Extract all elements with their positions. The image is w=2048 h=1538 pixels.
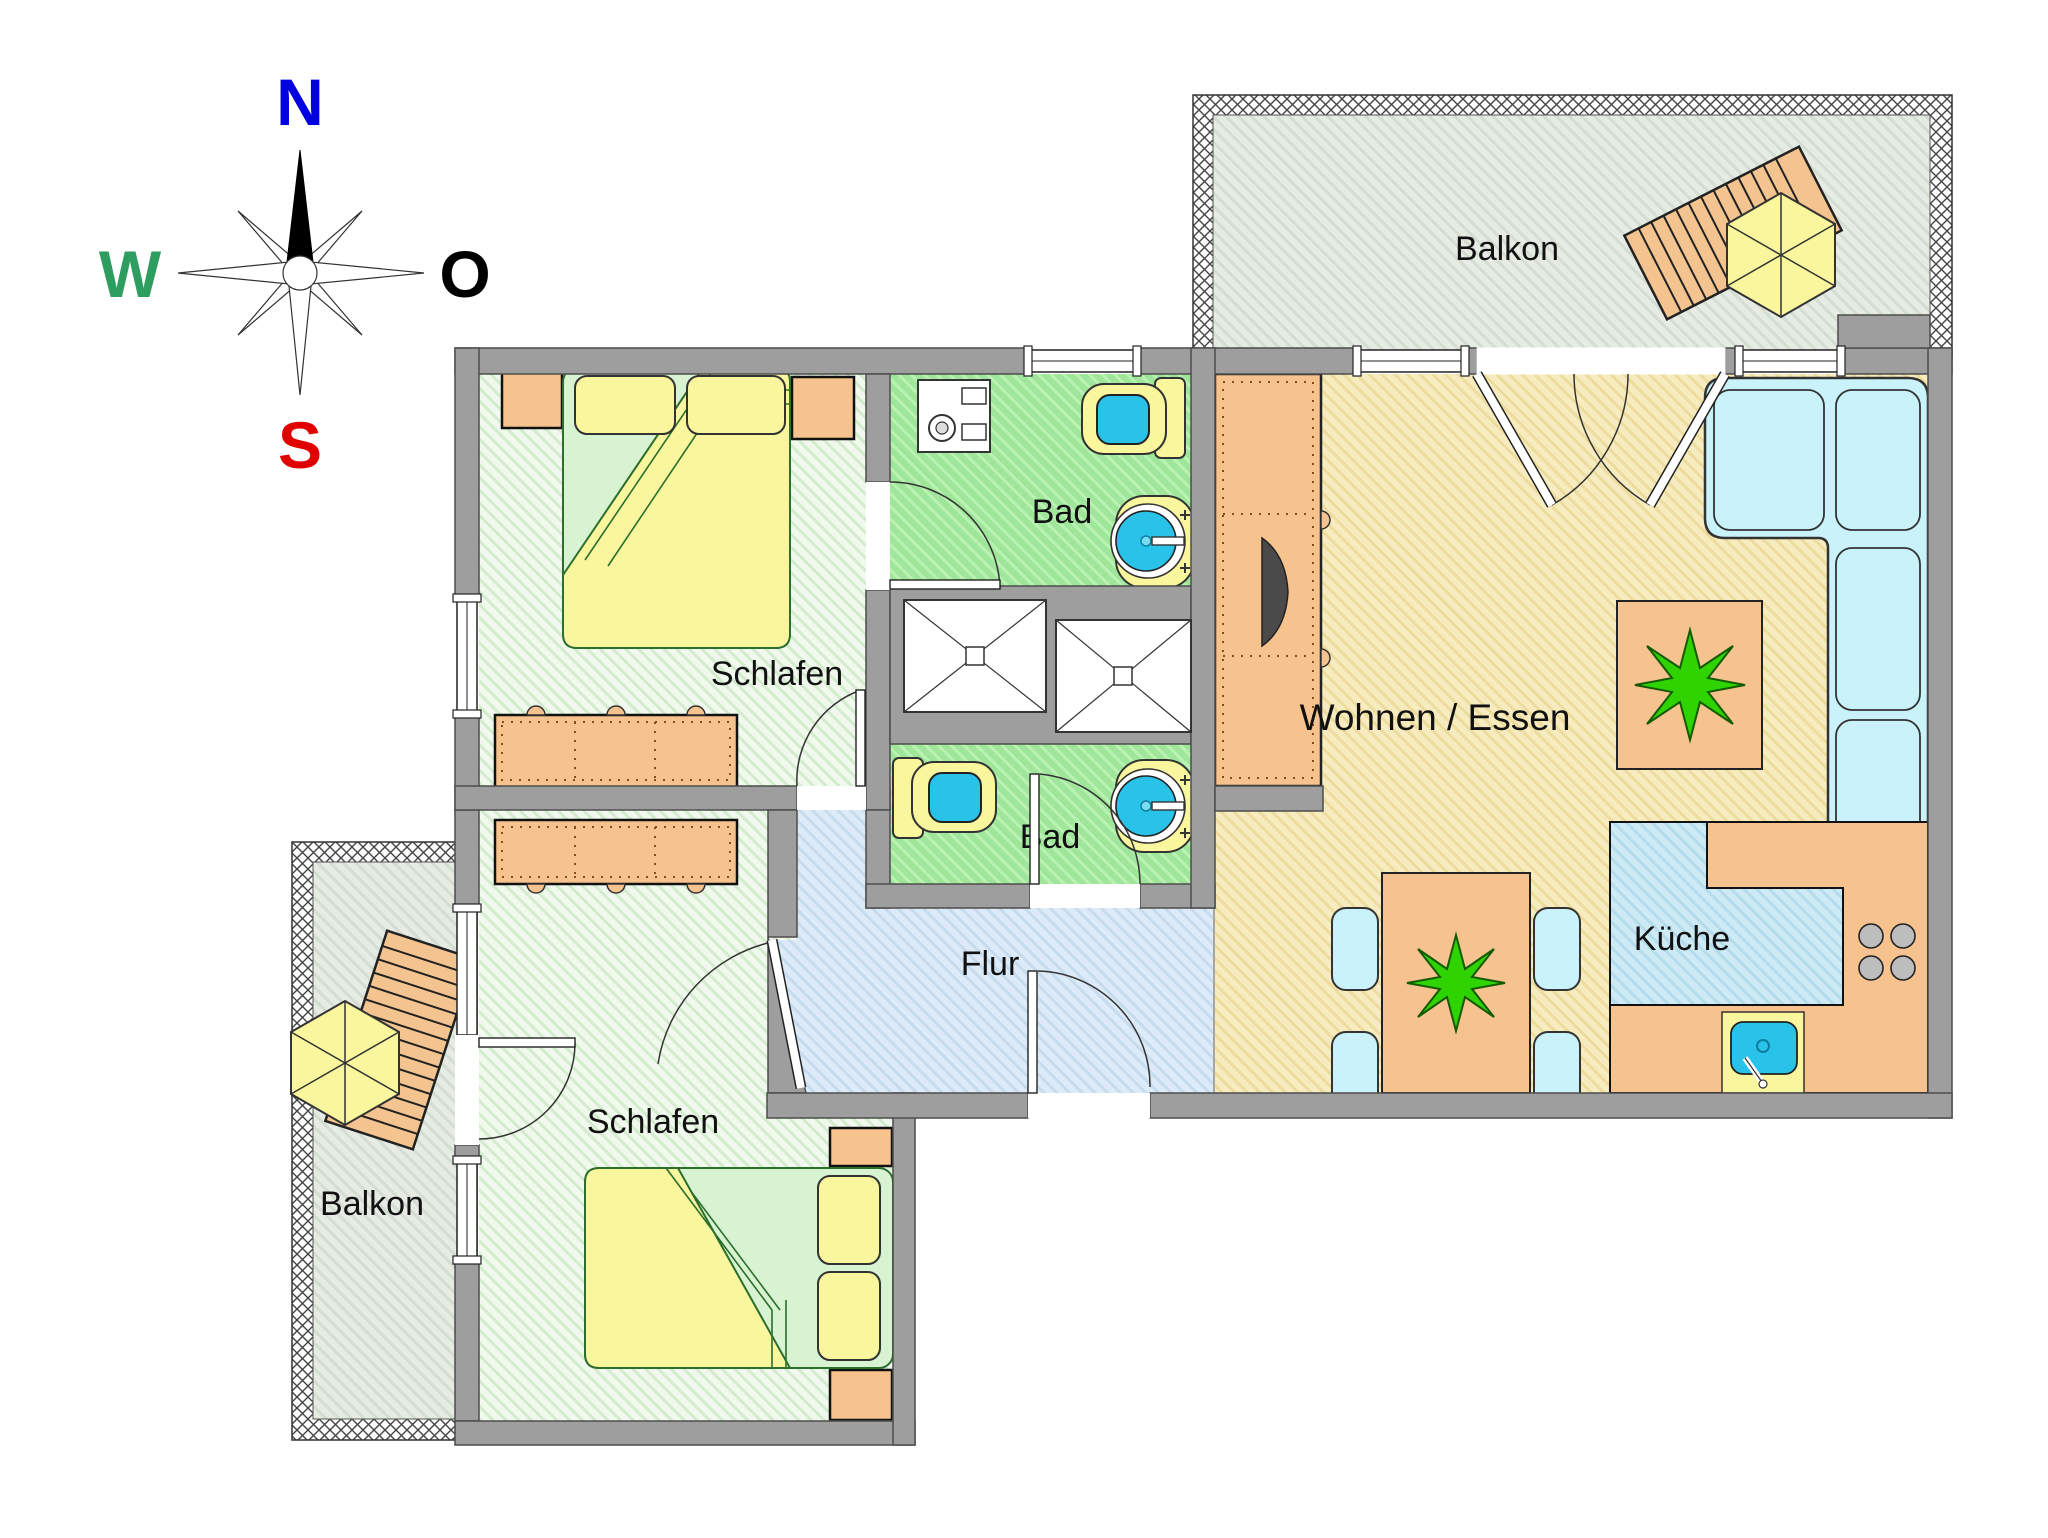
compass-north-needle	[287, 150, 313, 262]
pillow	[818, 1272, 880, 1360]
kitchen-label: Küche	[1634, 920, 1730, 958]
bedroom-top-label: Schlafen	[711, 655, 843, 693]
balcony-bottom: Balkon	[291, 842, 477, 1440]
washing-machine-icon	[918, 380, 990, 452]
compass-west-label: W	[99, 237, 162, 311]
nightstand	[792, 377, 854, 439]
balcony-top-label: Balkon	[1455, 230, 1559, 268]
window	[453, 904, 481, 1035]
living-label: Wohnen / Essen	[1300, 697, 1571, 738]
window	[1353, 346, 1469, 376]
hall-label: Flur	[961, 945, 1020, 983]
window	[453, 594, 481, 718]
compass-south-label: S	[278, 408, 322, 482]
nightstand	[502, 370, 562, 428]
double-bed	[585, 1168, 893, 1368]
chair	[1332, 908, 1378, 990]
compass-east-label: O	[439, 237, 490, 311]
sink-icon	[1111, 496, 1194, 588]
sink-icon	[1111, 760, 1194, 852]
compass-north-label: N	[276, 65, 324, 139]
wardrobe	[495, 820, 737, 893]
bedroom-bottom-label: Schlafen	[587, 1103, 719, 1141]
shaft	[904, 600, 1046, 712]
wardrobe	[495, 706, 737, 787]
window	[453, 1156, 481, 1264]
kitchen-sink-icon	[1722, 1012, 1804, 1093]
coffee-table-with-plant	[1617, 601, 1762, 769]
compass-rose: N O S W	[99, 65, 491, 482]
shaft	[1056, 620, 1191, 732]
pillow	[687, 376, 785, 434]
window	[1735, 346, 1845, 376]
balcony-bottom-label: Balkon	[320, 1185, 424, 1223]
nightstand	[830, 1370, 892, 1420]
double-bed	[563, 368, 790, 648]
chair	[1534, 908, 1580, 990]
nightstand	[830, 1128, 892, 1166]
pillow	[575, 376, 675, 434]
kitchen-area: Küche	[1610, 822, 1928, 1093]
bath-bottom-label: Bad	[1020, 818, 1081, 856]
pillow	[818, 1176, 880, 1264]
floor-plan: N O S W Balkon	[0, 0, 2048, 1538]
window	[1024, 346, 1141, 376]
toilet-icon	[1082, 378, 1185, 458]
toilet-icon	[893, 758, 996, 838]
bath-top-label: Bad	[1032, 493, 1093, 531]
